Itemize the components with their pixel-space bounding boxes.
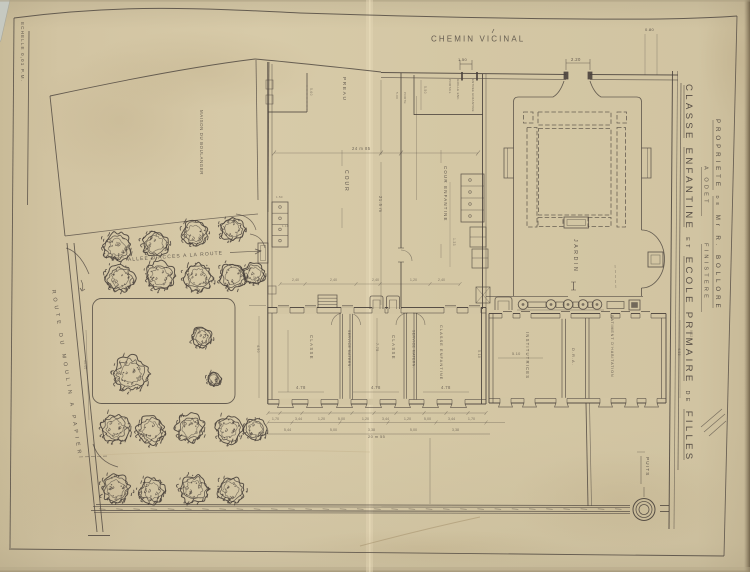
svg-text:FINISTERE: FINISTERE xyxy=(703,243,709,301)
svg-text:CLASSE: CLASSE xyxy=(309,335,314,360)
svg-text:2,40: 2,40 xyxy=(372,278,379,282)
svg-text:5.60: 5.60 xyxy=(309,88,313,96)
svg-text:1.50: 1.50 xyxy=(276,195,283,199)
svg-text:1,70: 1,70 xyxy=(272,417,279,421)
svg-text:INSTITUTRICES: INSTITUTRICES xyxy=(525,332,530,379)
svg-text:2,40: 2,40 xyxy=(330,278,337,282)
svg-text:24 m 85: 24 m 85 xyxy=(352,146,371,151)
svg-text:5.10: 5.10 xyxy=(512,352,521,356)
svg-text:1,20: 1,20 xyxy=(362,417,369,421)
svg-text:3,44: 3,44 xyxy=(295,417,302,421)
svg-text:1,20: 1,20 xyxy=(410,278,417,282)
svg-text:5,00: 5,00 xyxy=(330,428,337,432)
svg-text:PREAU: PREAU xyxy=(341,77,347,102)
svg-text:1.33: 1.33 xyxy=(452,238,456,246)
svg-text:BATIMENT D'HABITATION: BATIMENT D'HABITATION xyxy=(610,315,614,377)
svg-text:PORTE: PORTE xyxy=(403,92,407,104)
svg-text:5.10: 5.10 xyxy=(477,350,481,358)
svg-text:CLASSE ENFANTINE ET ECOLE PRIM: CLASSE ENFANTINE ET ECOLE PRIMAIRE DE FI… xyxy=(683,84,694,463)
svg-text:MAISON DU BOULANGER: MAISON DU BOULANGER xyxy=(199,110,204,175)
svg-text:SERVICE MATERN.: SERVICE MATERN. xyxy=(412,330,416,368)
svg-text:ENTREE ENFANTINE: ENTREE ENFANTINE xyxy=(471,79,475,112)
svg-text:CLASSE ENFANTINE: CLASSE ENFANTINE xyxy=(439,325,444,380)
svg-text:SERVICE MATERN.: SERVICE MATERN. xyxy=(347,330,351,368)
svg-text:3,44: 3,44 xyxy=(448,417,455,421)
svg-text:CLASSE: CLASSE xyxy=(391,335,396,360)
svg-text:CHEMIN VICINAL: CHEMIN VICINAL xyxy=(431,35,525,44)
svg-text:2,40: 2,40 xyxy=(438,278,445,282)
svg-text:4.90: 4.90 xyxy=(256,345,260,353)
svg-text:7.75: 7.75 xyxy=(375,343,379,352)
svg-text:3,38: 3,38 xyxy=(452,428,459,432)
svg-text:5,00: 5,00 xyxy=(410,428,417,432)
svg-text:5,44: 5,44 xyxy=(284,428,291,432)
svg-text:JARDIN: JARDIN xyxy=(572,239,578,273)
svg-text:GRILLE ENF.: GRILLE ENF. xyxy=(456,79,460,100)
svg-text:5.00: 5.00 xyxy=(395,92,399,99)
svg-text:40.00: 40.00 xyxy=(83,360,87,369)
svg-text:A ODET: A ODET xyxy=(703,166,709,206)
svg-text:2,40: 2,40 xyxy=(292,278,299,282)
svg-text:ECHELLE 0,01 P.M.: ECHELLE 0,01 P.M. xyxy=(20,22,25,82)
svg-text:4.78: 4.78 xyxy=(296,385,306,390)
svg-text:21.5 m: 21.5 m xyxy=(378,196,383,212)
svg-text:4.78: 4.78 xyxy=(371,385,381,390)
svg-text:COUR: COUR xyxy=(343,170,349,193)
svg-text:3,38: 3,38 xyxy=(368,428,375,432)
svg-text:2.20: 2.20 xyxy=(571,57,581,62)
svg-text:3,44: 3,44 xyxy=(382,417,389,421)
svg-text:1,20: 1,20 xyxy=(404,417,411,421)
svg-text:4.78: 4.78 xyxy=(441,385,451,390)
svg-text:5.50: 5.50 xyxy=(423,86,427,94)
svg-text:20 m 55: 20 m 55 xyxy=(368,434,386,439)
svg-text:COUR ENFANTINE: COUR ENFANTINE xyxy=(443,166,448,222)
svg-text:1,70: 1,70 xyxy=(468,417,475,421)
svg-text:D.R.A.: D.R.A. xyxy=(571,348,576,366)
svg-text:PUITS: PUITS xyxy=(645,457,650,477)
svg-text:0.80: 0.80 xyxy=(645,27,654,32)
svg-text:5,00: 5,00 xyxy=(338,417,345,421)
svg-text:PROPRIETE DE Mr R. BOLLORE: PROPRIETE DE Mr R. BOLLORE xyxy=(714,119,721,312)
svg-text:1,20: 1,20 xyxy=(318,417,325,421)
svg-text:5,00: 5,00 xyxy=(424,417,431,421)
svg-text:1.50: 1.50 xyxy=(458,57,467,62)
svg-text:1.10: 1.10 xyxy=(282,224,289,228)
svg-text:PORTAIL: PORTAIL xyxy=(448,79,452,94)
